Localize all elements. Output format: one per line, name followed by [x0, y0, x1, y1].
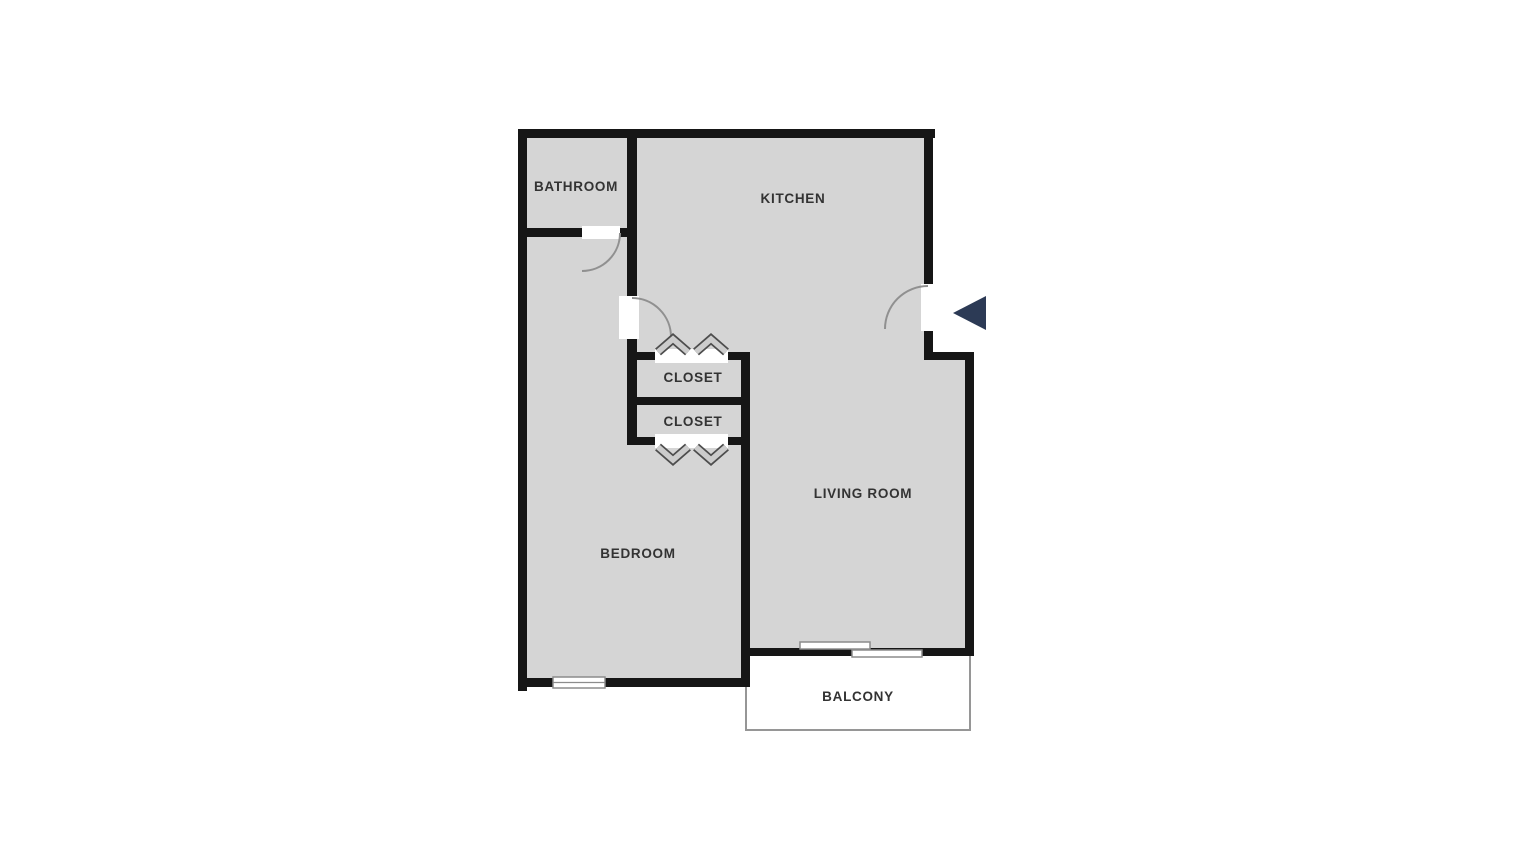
closet-top-label: CLOSET [664, 370, 723, 385]
wall-top [518, 129, 935, 138]
bathroom-label: BATHROOM [534, 179, 618, 194]
wall-kitchen-right-upper [924, 129, 933, 286]
floor-plan-drawing: BATHROOM KITCHEN CLOSET CLOSET LIVING RO… [0, 0, 1520, 855]
bedroom-label: BEDROOM [600, 546, 675, 561]
bathroom-door-leaf [582, 226, 620, 239]
entry-arrow-icon [953, 296, 986, 330]
entry-door-leaf [921, 284, 936, 331]
closet-bottom-label: CLOSET [664, 414, 723, 429]
balcony-label: BALCONY [822, 689, 894, 704]
living-room-label: LIVING ROOM [814, 486, 912, 501]
floor-plan-page: BATHROOM KITCHEN CLOSET CLOSET LIVING RO… [0, 0, 1520, 855]
wall-bedroom-living-divider [741, 352, 750, 687]
wall-bathroom-bottom-left [518, 228, 582, 237]
closet-bottom-door-leaf [655, 434, 728, 448]
hallway-door-leaf [619, 296, 639, 339]
wall-living-right [965, 352, 974, 656]
wall-left [518, 129, 527, 691]
wall-closet-bottom-left [627, 437, 655, 445]
kitchen-label: KITCHEN [761, 191, 826, 206]
closet-top-door-leaf [655, 349, 728, 363]
sliding-door-panel-inner [852, 650, 922, 657]
wall-closet-top-left [627, 352, 655, 360]
wall-closet-divider [627, 397, 750, 405]
sliding-door-panel-outer [800, 642, 870, 649]
wall-hall-kitchen-upper [627, 129, 637, 298]
